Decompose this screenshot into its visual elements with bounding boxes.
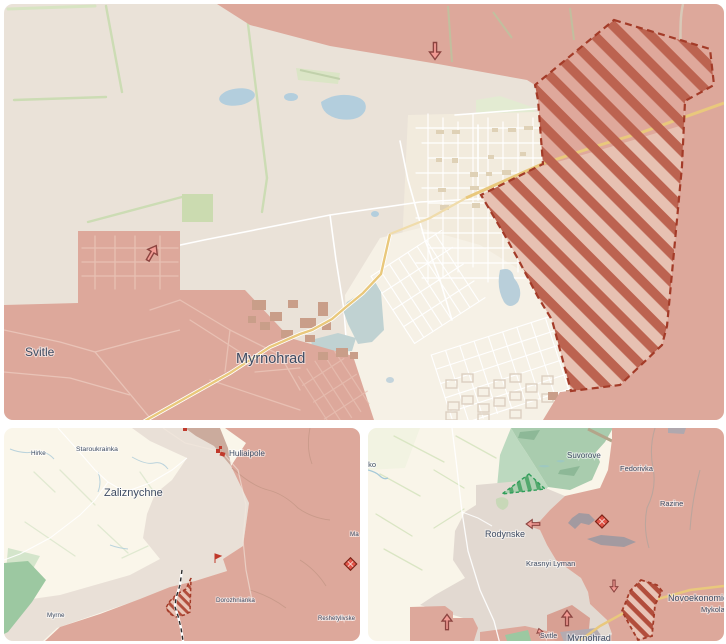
svg-text:Svitle: Svitle — [25, 345, 55, 359]
svg-text:Novoekonomich: Novoekonomich — [668, 593, 724, 603]
svg-text:Huliaipole: Huliaipole — [229, 449, 265, 458]
svg-text:Myrnohrad: Myrnohrad — [567, 633, 611, 641]
svg-text:Razine: Razine — [660, 499, 683, 508]
svg-text:Staroukrainka: Staroukrainka — [76, 446, 118, 453]
svg-text:Hirke: Hirke — [31, 450, 46, 457]
svg-text:Myrnohrad: Myrnohrad — [236, 351, 305, 367]
svg-text:Krasnyi Lyman: Krasnyi Lyman — [526, 559, 575, 568]
svg-text:Dorozhnianka: Dorozhnianka — [216, 597, 255, 604]
svg-text:Fedorivka: Fedorivka — [620, 464, 654, 473]
svg-text:Reshetylivske: Reshetylivske — [318, 616, 356, 622]
svg-text:Svitle: Svitle — [540, 633, 557, 640]
svg-text:Zaliznychne: Zaliznychne — [104, 487, 163, 499]
svg-text:Myrne: Myrne — [47, 612, 65, 619]
svg-text:Ma: Ma — [350, 531, 359, 538]
svg-text:Suvorove: Suvorove — [567, 451, 601, 460]
svg-text:nko: nko — [368, 460, 376, 469]
svg-text:Mykola: Mykola — [701, 605, 724, 614]
svg-text:Rodynske: Rodynske — [485, 529, 525, 539]
